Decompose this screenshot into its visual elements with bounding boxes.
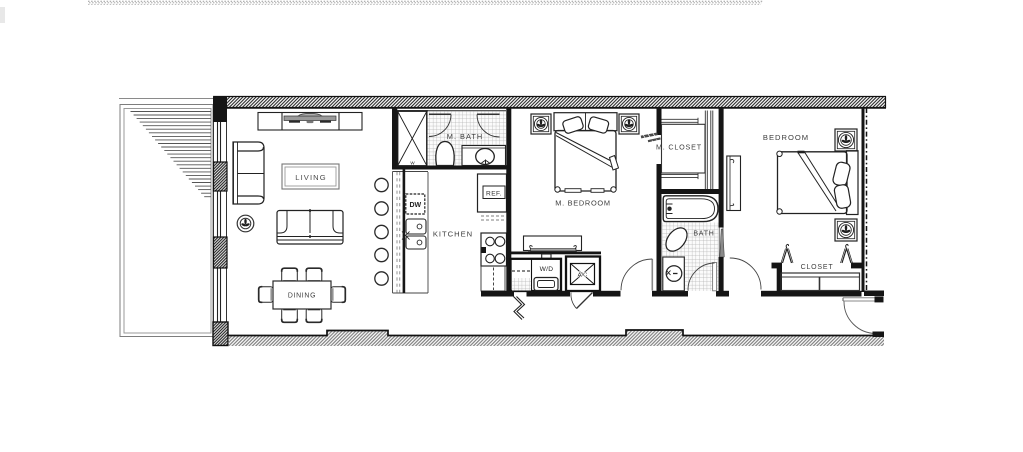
svg-text:M. BEDROOM: M. BEDROOM bbox=[555, 199, 610, 208]
svg-text:LIVING: LIVING bbox=[295, 173, 327, 182]
svg-text:M. BATH: M. BATH bbox=[447, 132, 483, 141]
svg-text:W/D: W/D bbox=[540, 266, 554, 273]
svg-text:CLOSET: CLOSET bbox=[801, 264, 834, 271]
svg-text:DINING: DINING bbox=[288, 293, 316, 300]
svg-text:DW: DW bbox=[409, 202, 421, 209]
svg-text:A/C: A/C bbox=[578, 273, 588, 279]
svg-text:KITCHEN: KITCHEN bbox=[433, 230, 473, 239]
svg-text:BEDROOM: BEDROOM bbox=[763, 133, 809, 142]
svg-text:M. CLOSET: M. CLOSET bbox=[656, 143, 702, 152]
svg-text:REF.: REF. bbox=[486, 191, 502, 198]
svg-text:BATH: BATH bbox=[693, 231, 714, 238]
